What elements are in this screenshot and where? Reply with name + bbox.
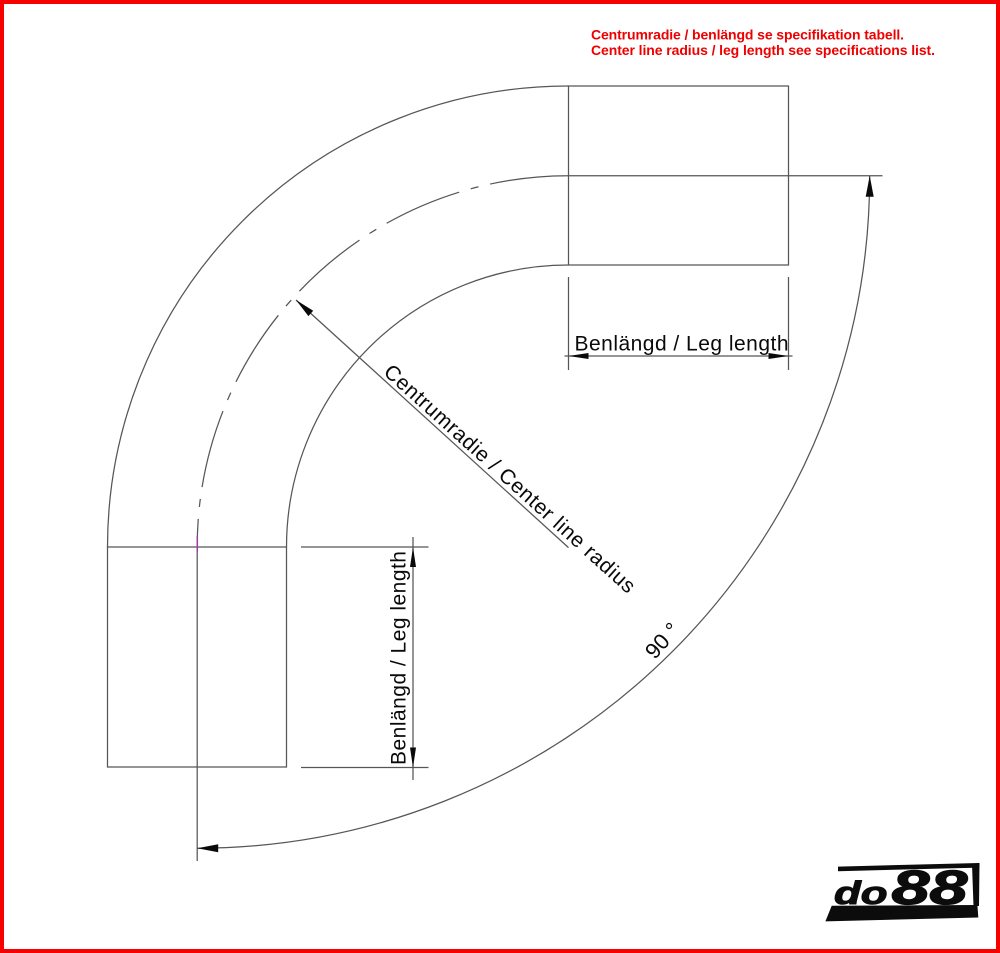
svg-text:do: do	[834, 875, 888, 911]
svg-text:Benlängd / Leg length: Benlängd / Leg length	[575, 332, 789, 355]
svg-text:Center line radius / leg lengt: Center line radius / leg length see spec…	[591, 42, 935, 58]
svg-text:88: 88	[892, 862, 968, 915]
svg-text:Centrumradie / benlängd se spe: Centrumradie / benlängd se specifikation…	[591, 26, 904, 42]
svg-text:Benlängd / Leg length: Benlängd / Leg length	[388, 551, 411, 765]
